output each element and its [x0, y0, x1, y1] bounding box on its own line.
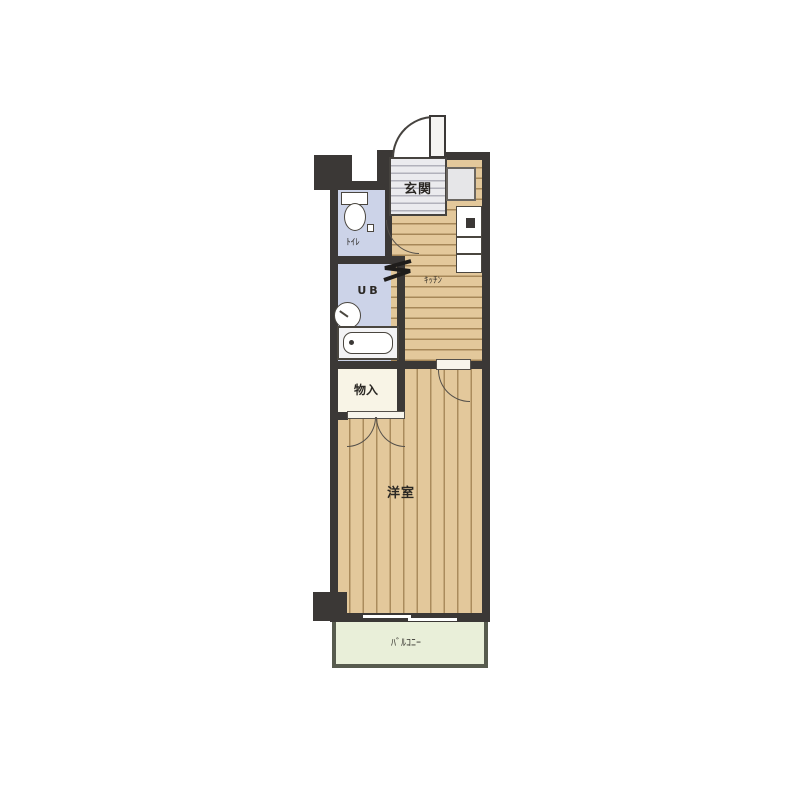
balcony-window-pane1-icon — [363, 615, 411, 618]
appliance-space-icon — [446, 167, 476, 201]
wall-storage-stub — [330, 412, 348, 420]
room-door-opening — [436, 359, 471, 370]
bathtub-drain-icon — [349, 340, 354, 345]
toilet-bowl-icon — [344, 203, 366, 231]
unit-bath-label: UB — [352, 283, 386, 298]
kitchen-faucet-icon — [466, 218, 475, 228]
balcony-window-pane2-icon — [408, 618, 457, 621]
wall-right — [482, 152, 490, 622]
bath-folding-door-icon — [382, 258, 414, 284]
storage-label: 物入 — [342, 380, 390, 398]
pillar-bottom-left — [313, 592, 347, 621]
wall-left — [330, 158, 338, 620]
toilet-flush-icon — [367, 224, 374, 232]
western-room-label: 洋室 — [378, 481, 424, 501]
entrance-door-leaf-icon — [429, 115, 446, 158]
balcony-label: ﾊﾞﾙｺﾆｰ — [366, 633, 446, 649]
kitchen-counter-mid-icon — [456, 237, 482, 254]
toilet-label: ﾄｲﾚ — [336, 234, 370, 248]
kitchen-label: ｷｯﾁﾝ — [411, 272, 455, 286]
kitchen-counter-low-icon — [456, 254, 482, 273]
entrance-door-swing-icon — [392, 116, 434, 158]
floor-plan: 玄関 ﾄｲﾚ UB ｷｯﾁﾝ 物入 洋室 ﾊﾞﾙｺﾆｰ — [0, 0, 800, 800]
entrance-label: 玄関 — [392, 176, 444, 198]
